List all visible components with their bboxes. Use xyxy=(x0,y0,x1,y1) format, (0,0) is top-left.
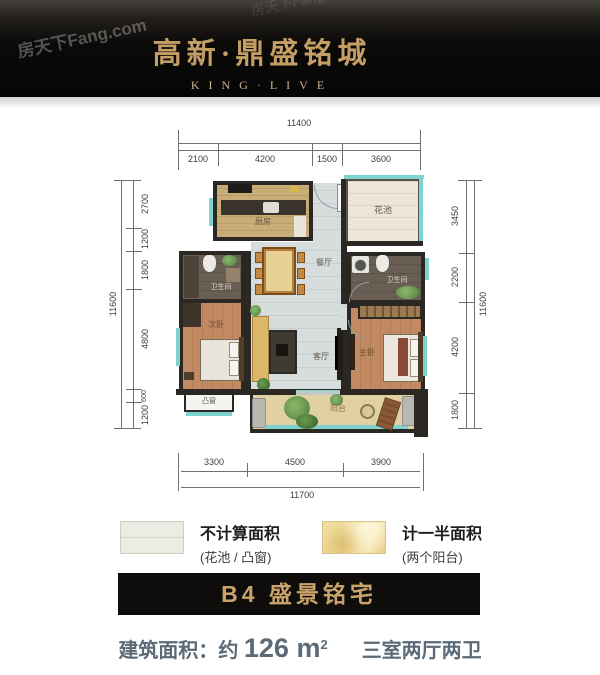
kitchen-stove xyxy=(228,184,252,193)
master-console xyxy=(349,334,355,370)
window-kitchen xyxy=(209,198,213,226)
dim-top-rail-inner xyxy=(178,150,421,151)
room-label-second-bedroom: 次卧 xyxy=(196,320,236,330)
legend-subtitle: (花池 / 凸窗) xyxy=(200,547,320,566)
dim-left-seg: 1200 xyxy=(140,395,150,435)
legend-item-half: 计一半面积 (两个阳台) xyxy=(402,520,522,566)
dim-left-seg: 1800 xyxy=(140,250,150,290)
dim-bottom-tick xyxy=(247,463,248,477)
dim-left-rail-inner xyxy=(133,180,134,428)
dim-left-rail-outer xyxy=(121,180,122,428)
dim-right-seg: 4200 xyxy=(450,327,460,367)
dim-right-tick xyxy=(459,393,474,394)
dim-right-tick xyxy=(459,253,474,254)
dim-right-tick-end xyxy=(458,428,482,429)
bath-left-vanity xyxy=(226,268,240,282)
dining-tabletop xyxy=(266,251,292,291)
master-wardrobe xyxy=(358,304,422,319)
second-bedroom-stool xyxy=(184,372,194,380)
second-bedroom-pillow xyxy=(229,342,239,358)
window-pool-top xyxy=(344,175,424,179)
dim-left-tick-end xyxy=(114,428,141,429)
legend-subtitle: (两个阳台) xyxy=(402,547,522,566)
window-bay xyxy=(186,412,232,416)
dim-bottom-rail-inner xyxy=(181,471,420,472)
kitchen-cabinet xyxy=(294,216,306,237)
second-bedroom-pillow xyxy=(229,360,239,376)
dim-bottom-tick xyxy=(343,463,344,477)
footer-area-line: 建筑面积：约 126 m2三室两厅两卫 xyxy=(0,633,600,664)
dim-right-tick xyxy=(459,302,474,303)
dim-top-seg: 1500 xyxy=(307,154,347,165)
bath-right-plant xyxy=(396,286,420,299)
dim-top-tick-end-right xyxy=(420,130,421,170)
dim-top-seg: 2100 xyxy=(178,154,218,165)
second-bedroom-headboard xyxy=(239,337,244,381)
layout-text: 三室两厅两卫 xyxy=(362,640,482,662)
room-label-dining: 餐厅 xyxy=(308,258,340,268)
legend-swatch-excluded xyxy=(120,521,184,554)
dim-right-seg: 1800 xyxy=(450,390,460,430)
living-plant xyxy=(250,305,261,316)
dim-left-total: 11600 xyxy=(108,279,118,329)
window-master xyxy=(423,336,427,376)
dim-bottom-seg: 4500 xyxy=(275,457,315,468)
window-pool-right xyxy=(419,179,423,245)
area-value: 126 xyxy=(244,633,289,663)
balcony-post-left xyxy=(252,398,266,428)
room-label-balcony: 阳台 xyxy=(322,404,354,414)
dim-bottom-tick-end xyxy=(178,453,179,491)
legend-title: 计一半面积 xyxy=(402,520,522,544)
dim-right-rail-inner xyxy=(466,180,467,428)
bath-right-washer xyxy=(352,256,369,273)
legend-swatch-half xyxy=(322,521,386,554)
dining-chair xyxy=(255,268,263,279)
dim-right-seg: 3450 xyxy=(450,196,460,236)
area-approx: 约 xyxy=(218,640,244,662)
dim-right-tick-end xyxy=(458,180,482,181)
dim-top-rail-outer xyxy=(178,143,421,144)
master-door-opening xyxy=(341,304,347,330)
dim-top-seg: 3600 xyxy=(361,154,401,165)
header-shadow xyxy=(0,97,600,109)
room-label-bath-right: 卫生间 xyxy=(376,276,418,286)
dim-bottom-seg: 3300 xyxy=(194,457,234,468)
room-label-flower-pool: 花池 xyxy=(358,205,408,215)
dining-chair xyxy=(255,252,263,263)
bath-left-shower xyxy=(184,256,199,298)
dim-right-total: 11600 xyxy=(478,279,488,329)
balcony-plant xyxy=(296,414,318,429)
area-unit: m xyxy=(289,633,321,663)
dim-left-tick-end xyxy=(114,180,141,181)
dim-bottom-rail-outer xyxy=(181,487,420,488)
dim-left-seg: 4800 xyxy=(140,319,150,359)
legend-title: 不计算面积 xyxy=(200,520,320,544)
unit-banner: B4 盛景铭宅 xyxy=(118,573,480,615)
dining-chair xyxy=(297,284,305,295)
window-second-bedroom xyxy=(176,328,180,366)
unit-banner-title: B4 盛景铭宅 xyxy=(118,573,480,615)
area-unit-sup: 2 xyxy=(320,637,327,652)
dim-top-total: 11400 xyxy=(254,118,344,129)
kitchen-dish xyxy=(290,186,299,192)
dining-chair xyxy=(255,284,263,295)
room-label-kitchen: 厨房 xyxy=(233,217,293,227)
dim-top-tick xyxy=(218,144,219,166)
living-sofa xyxy=(252,316,269,382)
room-label-bay-window: 凸窗 xyxy=(186,397,232,407)
dim-top-seg: 4200 xyxy=(245,154,285,165)
area-label: 建筑面积： xyxy=(118,640,218,662)
bath-left-toilet xyxy=(203,255,216,272)
room-label-master-bedroom: 主卧 xyxy=(352,348,382,358)
wall-pool-bottom xyxy=(343,241,423,246)
page: 高新·鼎盛铭城 KING·LIVE 房天下Fang.com 房天下Fang.co… xyxy=(0,0,600,675)
kitchen-sink xyxy=(263,202,279,213)
window-bath-right xyxy=(425,258,429,280)
dim-bottom-total: 11700 xyxy=(262,490,342,501)
brand-subtitle: KING·LIVE xyxy=(0,78,524,93)
dim-right-seg: 2200 xyxy=(450,257,460,297)
room-label-living: 客厅 xyxy=(304,352,338,362)
dim-bottom-seg: 3900 xyxy=(361,457,401,468)
wall-balcony-right xyxy=(414,393,428,437)
living-coffee-table xyxy=(276,344,288,356)
bath-right-toilet xyxy=(376,255,389,272)
dining-chair xyxy=(297,268,305,279)
dining-chair xyxy=(297,252,305,263)
legend-item-excluded: 不计算面积 (花池 / 凸窗) xyxy=(200,520,320,566)
dim-right-rail-outer xyxy=(474,180,475,428)
dim-left-seg: 2700 xyxy=(140,184,150,224)
header-banner: 高新·鼎盛铭城 KING·LIVE 房天下Fang.com 房天下Fang.co… xyxy=(0,0,600,97)
room-label-bath-left: 卫生间 xyxy=(200,283,242,293)
dim-bottom-tick-end xyxy=(423,453,424,491)
bath-left-plant xyxy=(222,255,237,266)
master-bed-throw xyxy=(398,338,408,376)
balcony-table xyxy=(360,404,375,419)
tv-screen xyxy=(335,336,338,370)
